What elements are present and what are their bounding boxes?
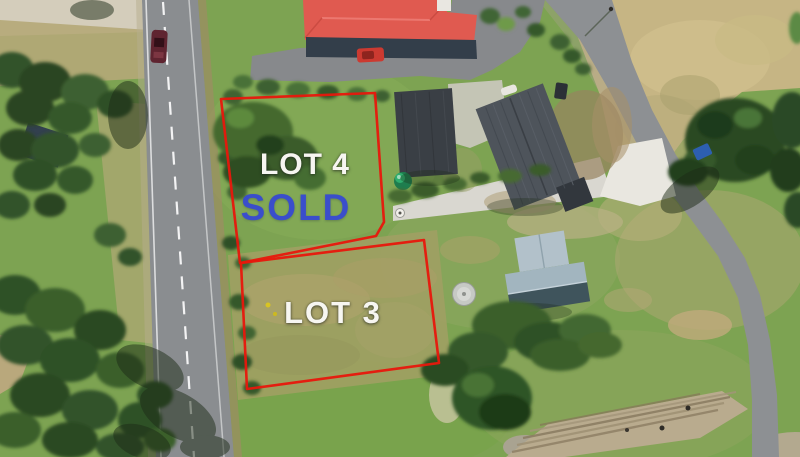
lot4-label: LOT 4	[230, 150, 380, 180]
red-parked-car-roof	[362, 51, 374, 60]
aerial-photo-canvas	[0, 0, 800, 457]
round-water-tank	[453, 283, 476, 306]
survey-marker	[396, 209, 405, 218]
roof-skylight	[437, 0, 451, 11]
car-on-road	[150, 30, 168, 64]
dark-parked-car	[554, 82, 568, 100]
lot3-label: LOT 3	[258, 297, 408, 328]
aerial-photo: LOT 4 SOLD LOT 3	[0, 0, 800, 457]
lot4-sold-label: SOLD	[221, 189, 371, 226]
veranda-shadow	[306, 37, 477, 59]
small-shed	[394, 88, 458, 178]
red-roof-house	[303, 0, 477, 59]
